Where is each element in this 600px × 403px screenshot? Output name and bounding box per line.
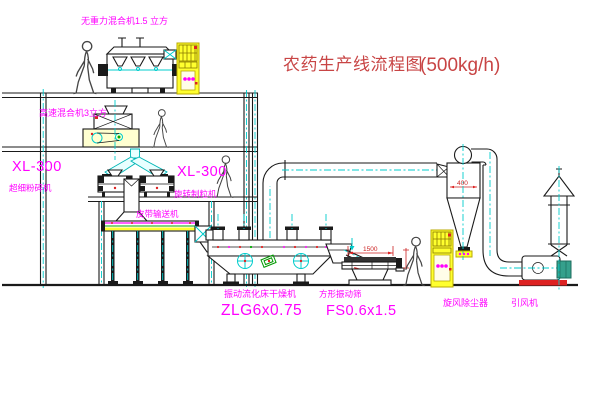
drawing-title-capacity: (500kg/h) <box>420 55 500 76</box>
person-top-floor <box>73 42 96 94</box>
belt-conveyor <box>101 221 199 286</box>
label-sieve: 方形振动筛 <box>319 289 362 299</box>
conveyor-legs <box>108 231 193 285</box>
label-pulverizer-model: XL-300 <box>12 159 62 175</box>
label-pulverizer: 超细粉碎机 <box>9 183 52 193</box>
dryer-nozzles <box>211 214 333 240</box>
drawing-title: 农药生产线流程图 <box>283 55 423 74</box>
induced-draft-fan <box>500 256 571 286</box>
cad-drawing-canvas: 无重力混合机1.5 立方 农药生产线流程图 (500kg/h) 高速混合机3立方… <box>0 0 600 403</box>
granulator-unit <box>140 170 174 197</box>
label-belt-conveyor: 皮带输送机 <box>136 209 179 219</box>
control-cabinet-bottom <box>431 230 453 287</box>
label-dryer-model: ZLG6x0.75 <box>221 302 302 319</box>
label-gravity-free-mixer: 无重力混合机1.5 立方 <box>81 15 168 26</box>
label-granulator: 旋转制粒机 <box>174 189 217 199</box>
label-dryer: 振动流化床干燥机 <box>224 288 296 299</box>
label-cyclone: 旋风除尘器 <box>443 297 488 308</box>
label-granulator-model: XL-300 <box>177 164 227 180</box>
control-cabinet-top <box>177 43 199 94</box>
label-fan: 引风机 <box>511 297 538 308</box>
label-high-speed-mixer: 高速混合机3立方 <box>39 107 107 118</box>
person-second-floor <box>152 110 169 148</box>
dim-sieve-length: 1500 <box>363 246 378 253</box>
dim-cyclone-body: 400 <box>457 180 468 187</box>
label-sieve-model: FS0.6x1.5 <box>326 303 397 319</box>
person-ground <box>403 237 424 285</box>
fluid-bed-dryer <box>206 214 333 285</box>
gravity-free-mixer <box>98 38 182 93</box>
